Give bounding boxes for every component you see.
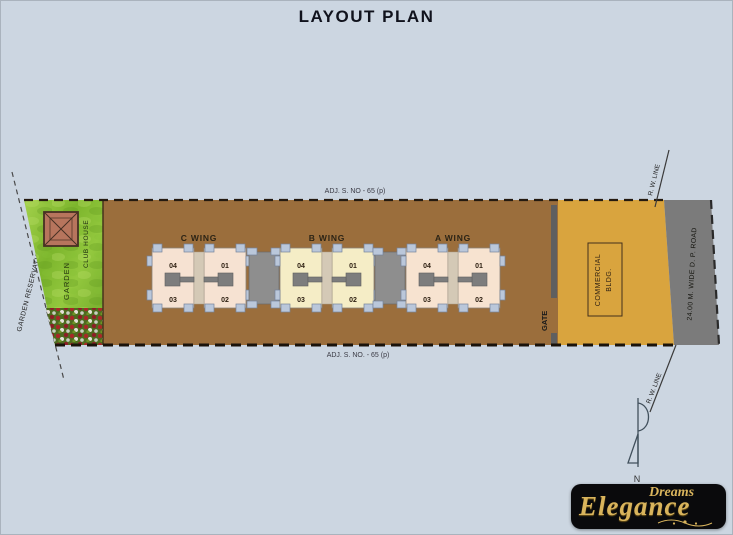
rw-line-top-label: R. W. LINE [647,163,662,197]
wing-b-shell [275,244,379,312]
wing-c-unit-03: 03 [169,297,177,304]
wing-b-unit-01: 01 [349,263,357,270]
logo-flourish-icon [656,518,714,527]
commercial-parcel [558,200,674,345]
commercial-building-label-2: BLDG. [606,268,613,292]
adjacent-survey-label-top: ADJ. S. NO - 65 (p) [325,188,386,195]
wing-c-unit-02: 02 [221,297,229,304]
garden-label: GARDEN [62,262,71,300]
wing-a-label: A WING [435,233,471,243]
commercial-building-label-1: COMMERCIAL [595,254,602,306]
club-house-label: CLUB HOUSE [83,220,90,268]
wing-b-label: B WING [309,233,345,243]
wing-a-unit-01: 01 [475,263,483,270]
gate-label: GATE [540,311,549,331]
wing-a-unit-04: 04 [423,263,431,270]
gate-wall-upper [551,205,557,298]
layout-plan-page: LAYOUT PLAN [0,0,733,535]
site-plan-drawing: GARDEN RESERVATION CLUB HOUSE GARDEN ADJ… [0,0,733,535]
club-house-icon [44,212,78,246]
wing-a-unit-03: 03 [423,297,431,304]
wing-c-shell [147,244,251,312]
wing-c-label: C WING [181,233,217,243]
wing-a-unit-02: 02 [475,297,483,304]
wing-b-unit-04: 04 [297,263,305,270]
north-arrow-icon [628,398,649,467]
north-label: N [634,474,641,484]
wing-b-unit-03: 03 [297,297,305,304]
wing-c-unit-01: 01 [221,263,229,270]
wing-a-shell [401,244,505,312]
brand-logo: Dreams Elegance [571,484,726,529]
adjacent-survey-label-bottom: ADJ. S. NO. - 65 (p) [327,352,390,359]
gate-wall-lower [551,333,557,344]
garden-flower-bed [46,308,103,345]
wing-b-unit-02: 02 [349,297,357,304]
wing-c-unit-04: 04 [169,263,177,270]
